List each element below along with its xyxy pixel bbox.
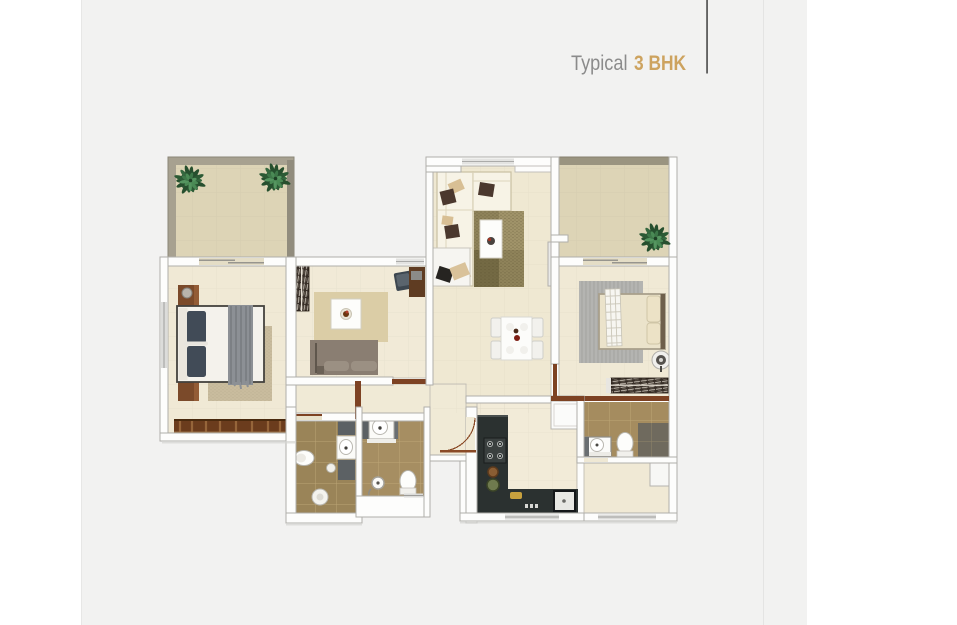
svg-text:3 BHK: 3 BHK [634,51,686,75]
svg-text:Typical: Typical [571,51,628,75]
